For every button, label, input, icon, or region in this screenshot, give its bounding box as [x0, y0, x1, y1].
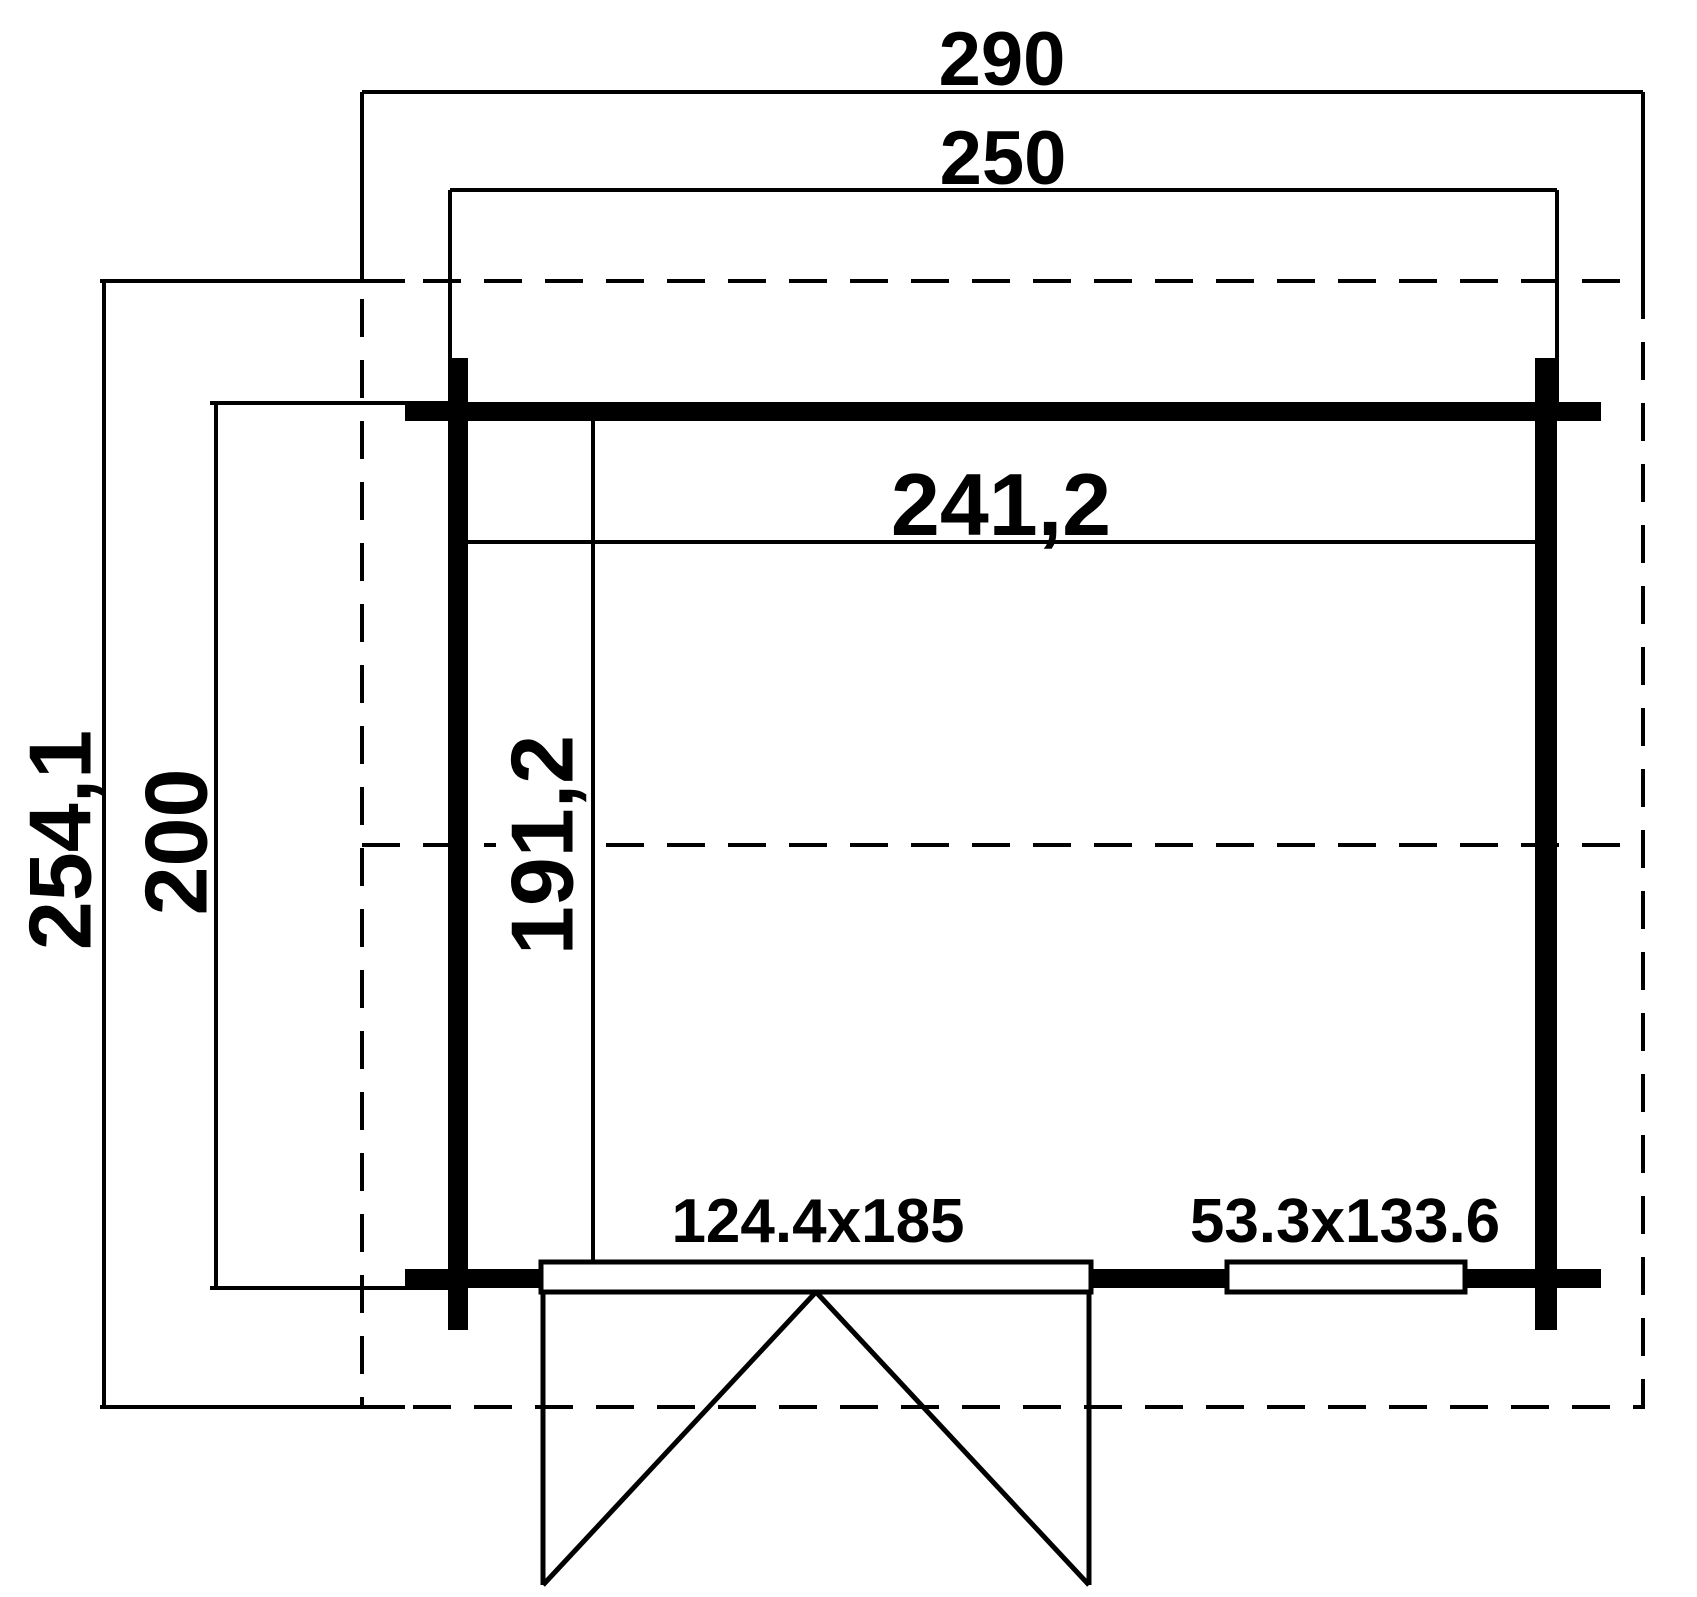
wall-right	[1535, 358, 1557, 1330]
floor-plan-drawing: 290 250 241,2 191,2 254,1 200 124.4x185 …	[0, 0, 1697, 1597]
dim-label-inner-depth: 191,2	[493, 735, 592, 955]
door-frame	[541, 1262, 1091, 1292]
door	[541, 1262, 1091, 1585]
dim-outer-width	[450, 190, 1557, 403]
dim-label-inner-width: 241,2	[891, 455, 1111, 554]
window-frame	[1227, 1262, 1465, 1292]
floor-plan-canvas: 290 250 241,2 191,2 254,1 200 124.4x185 …	[0, 0, 1697, 1597]
dim-label-overall-depth: 254,1	[11, 730, 110, 950]
wall-left	[448, 358, 468, 1330]
dim-label-overall-width: 290	[939, 17, 1066, 102]
dim-label-outer-depth: 200	[127, 769, 226, 916]
wall-bottom-right-segment	[1465, 1269, 1601, 1288]
dim-label-outer-width: 250	[940, 116, 1067, 201]
wall-bottom-middle-segment	[1091, 1269, 1227, 1288]
window-size-label: 53.3x133.6	[1190, 1187, 1500, 1256]
wall-bottom-left-segment	[405, 1269, 541, 1288]
dim-outer-depth	[210, 403, 450, 1288]
door-leaf-left-swing	[543, 1292, 816, 1585]
wall-top	[405, 402, 1601, 421]
door-leaf-right-swing	[816, 1292, 1089, 1585]
door-size-label: 124.4x185	[671, 1187, 964, 1256]
